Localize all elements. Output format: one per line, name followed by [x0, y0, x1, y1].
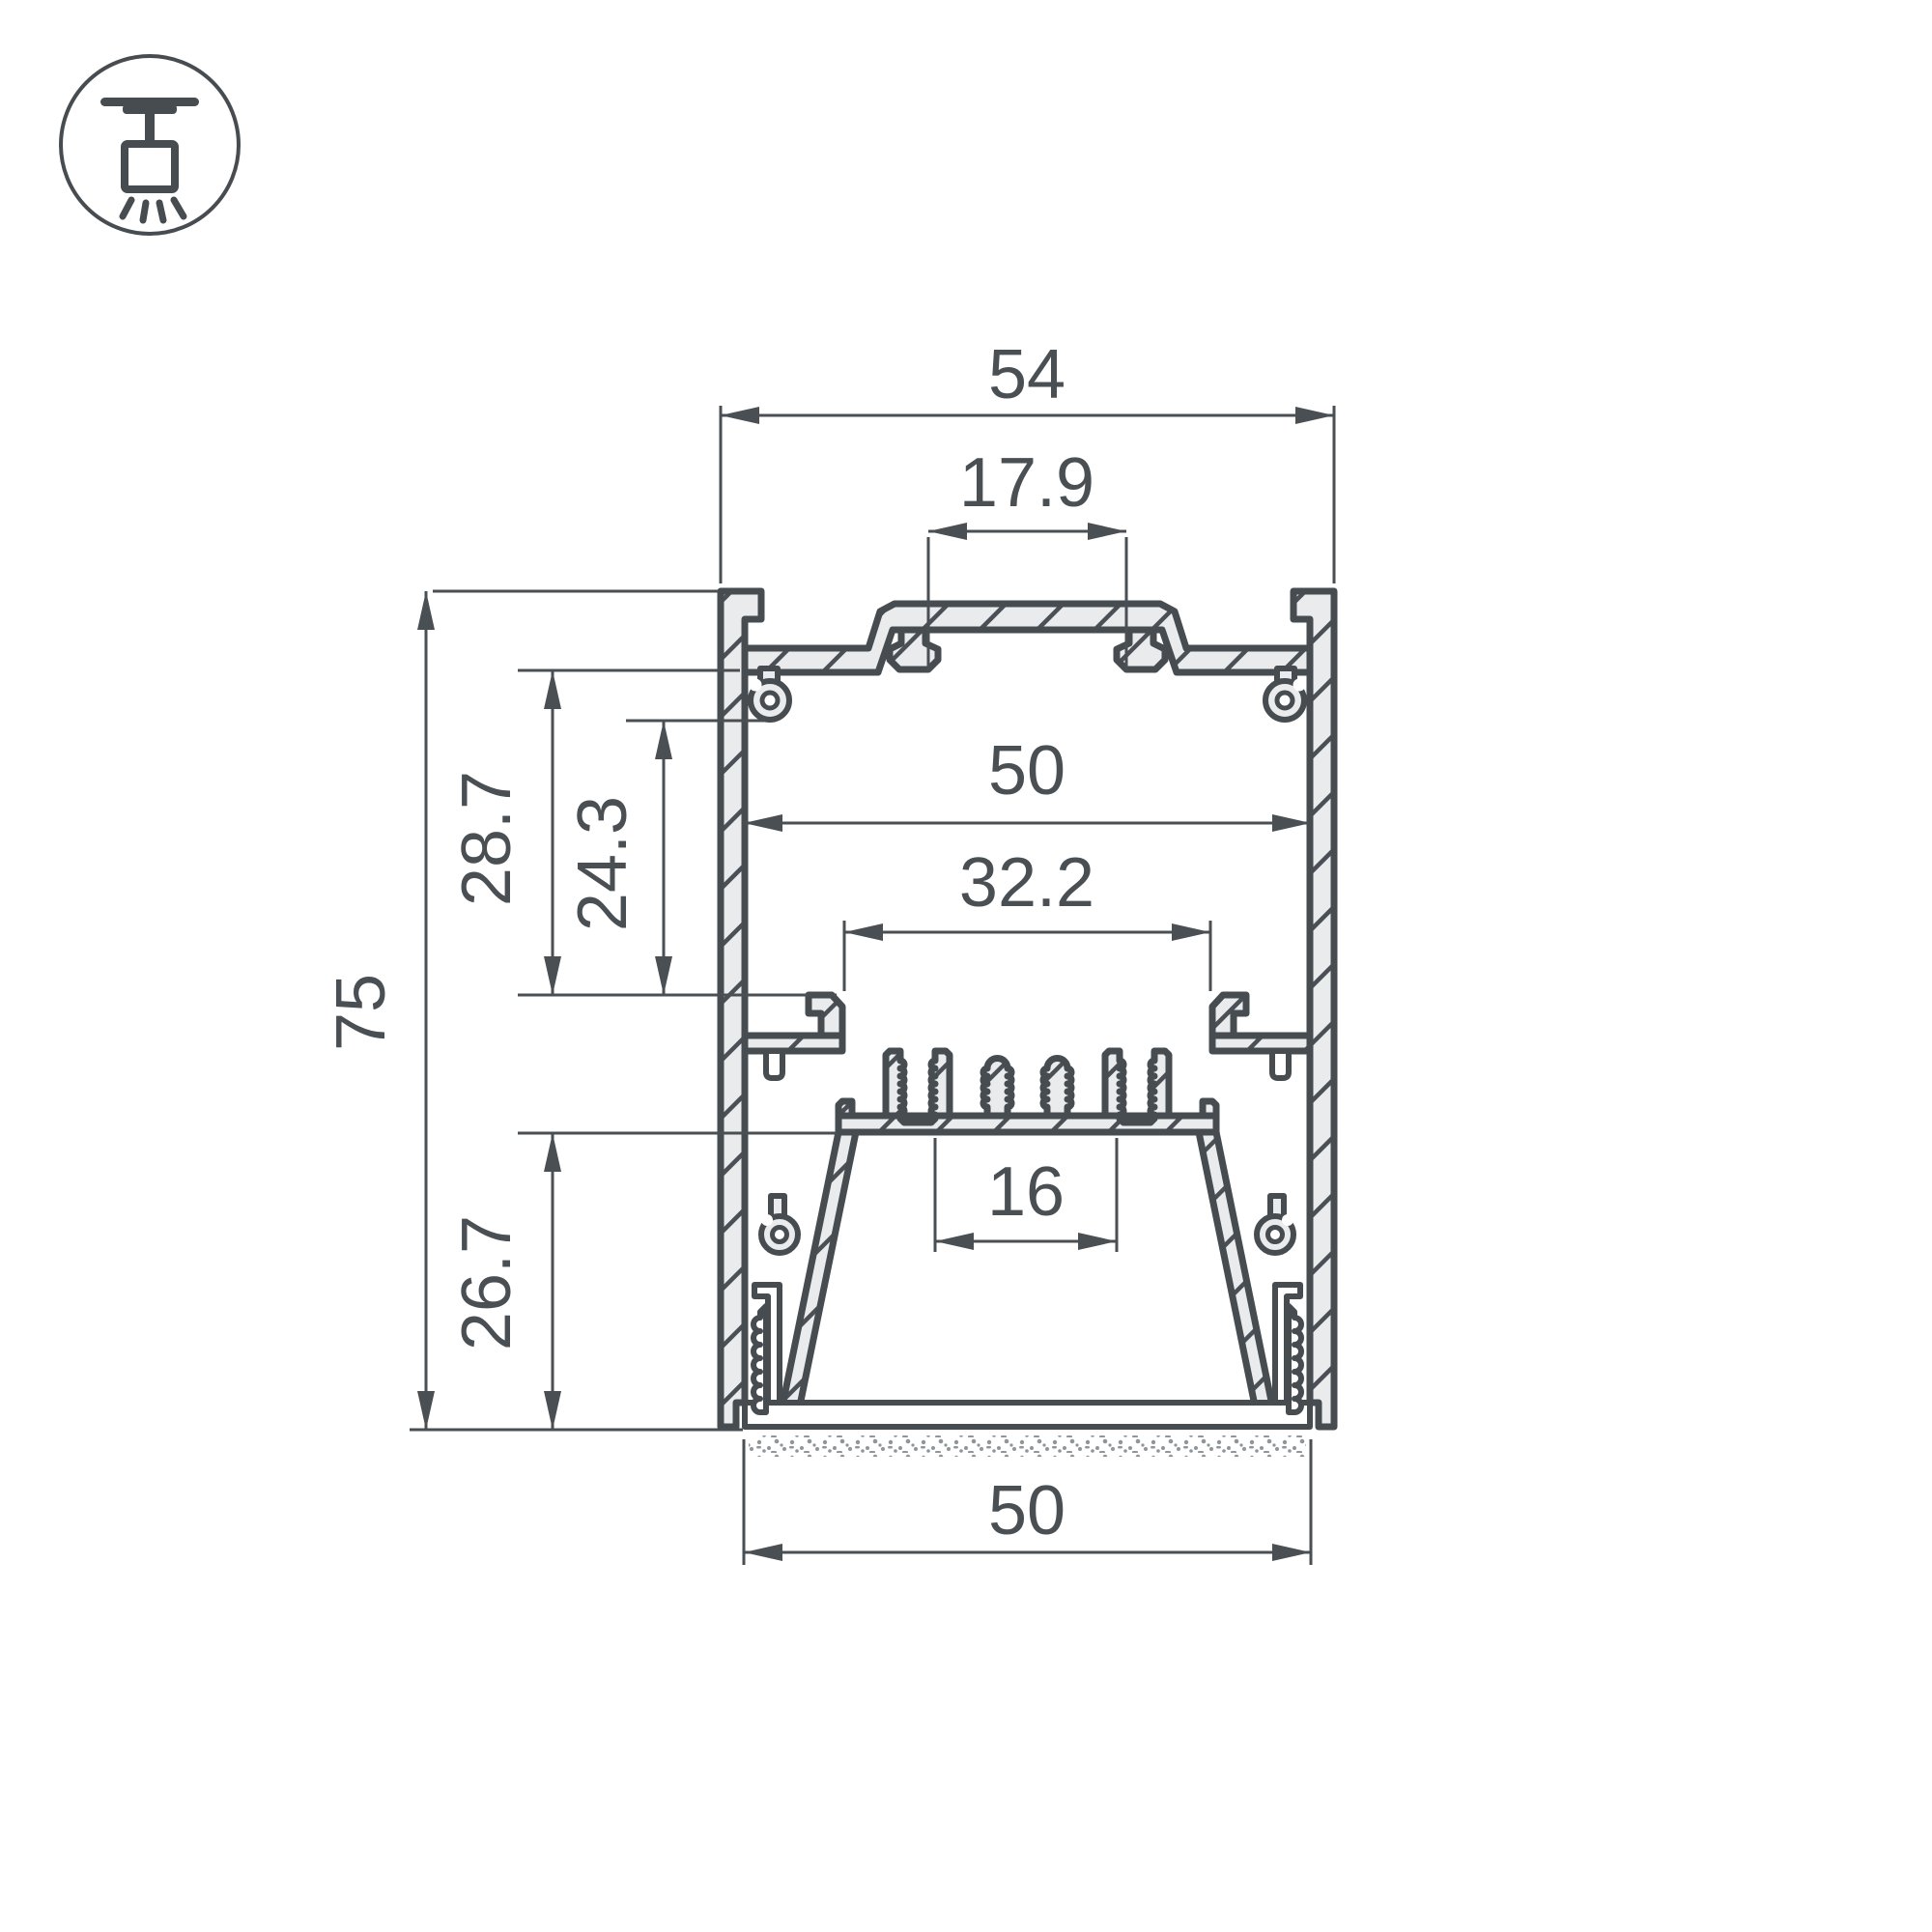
- dim-outer-width: 54: [988, 336, 1065, 413]
- dim-inner-width: 50: [988, 732, 1065, 810]
- profile-body: [721, 591, 1334, 1427]
- dim-inner-cavity-depth: 24.3: [564, 796, 641, 931]
- dimension-arrows: [417, 407, 1334, 1561]
- lower-screw-boss-right: [1257, 1196, 1293, 1253]
- right-ledge-lip: [1212, 995, 1246, 1036]
- dimensions: 54 17.9 50 32.2 16 50 75 28.7 24.3 26.7: [323, 336, 1334, 1565]
- dim-upper-cavity-depth: 28.7: [448, 771, 526, 906]
- top-plate: [745, 604, 1310, 672]
- icon-light-rays: [123, 200, 184, 220]
- top-slot-right-hook: [1117, 630, 1165, 669]
- pendant-mount-icon: [61, 56, 239, 234]
- frosted-diffuser-band: [749, 1435, 1306, 1457]
- right-ledge-tab: [1272, 1051, 1289, 1078]
- left-ledge-lip: [809, 995, 842, 1036]
- bottom-plate: [745, 1403, 1310, 1427]
- left-ledge-tab: [766, 1051, 782, 1078]
- dimension-lines: [426, 415, 1334, 1552]
- dim-bottom-width: 50: [988, 1472, 1065, 1549]
- upper-screw-boss-right: [1265, 668, 1306, 720]
- dim-lower-cavity-depth: 26.7: [448, 1215, 526, 1350]
- technical-drawing-page: 54 17.9 50 32.2 16 50 75 28.7 24.3 26.7: [0, 0, 1932, 1932]
- platform-screw-port-right: [1105, 1051, 1169, 1122]
- dim-top-slot-width: 17.9: [959, 444, 1094, 522]
- platform-left-leg: [782, 1132, 856, 1406]
- platform-right-leg: [1199, 1132, 1272, 1406]
- top-slot-left-hook: [890, 630, 938, 669]
- left-serrated-strip: [753, 1306, 766, 1412]
- platform-center-fin-left: [983, 1059, 1011, 1117]
- lower-screw-boss-left: [761, 1196, 798, 1253]
- platform-screw-port-left: [886, 1051, 950, 1122]
- dim-led-platform-width: 16: [987, 1153, 1065, 1231]
- dim-ledge-opening: 32.2: [959, 844, 1094, 922]
- right-serrated-strip: [1289, 1306, 1301, 1412]
- platform-right-end-tab: [1203, 1101, 1216, 1116]
- dim-total-height: 75: [323, 974, 400, 1051]
- platform-center-fin-right: [1043, 1059, 1071, 1117]
- led-profile-cross-section-drawing: 54 17.9 50 32.2 16 50 75 28.7 24.3 26.7: [0, 0, 1932, 1932]
- platform-left-end-tab: [838, 1101, 852, 1116]
- icon-luminaire-box: [125, 144, 175, 189]
- upper-screw-boss-left: [750, 668, 790, 720]
